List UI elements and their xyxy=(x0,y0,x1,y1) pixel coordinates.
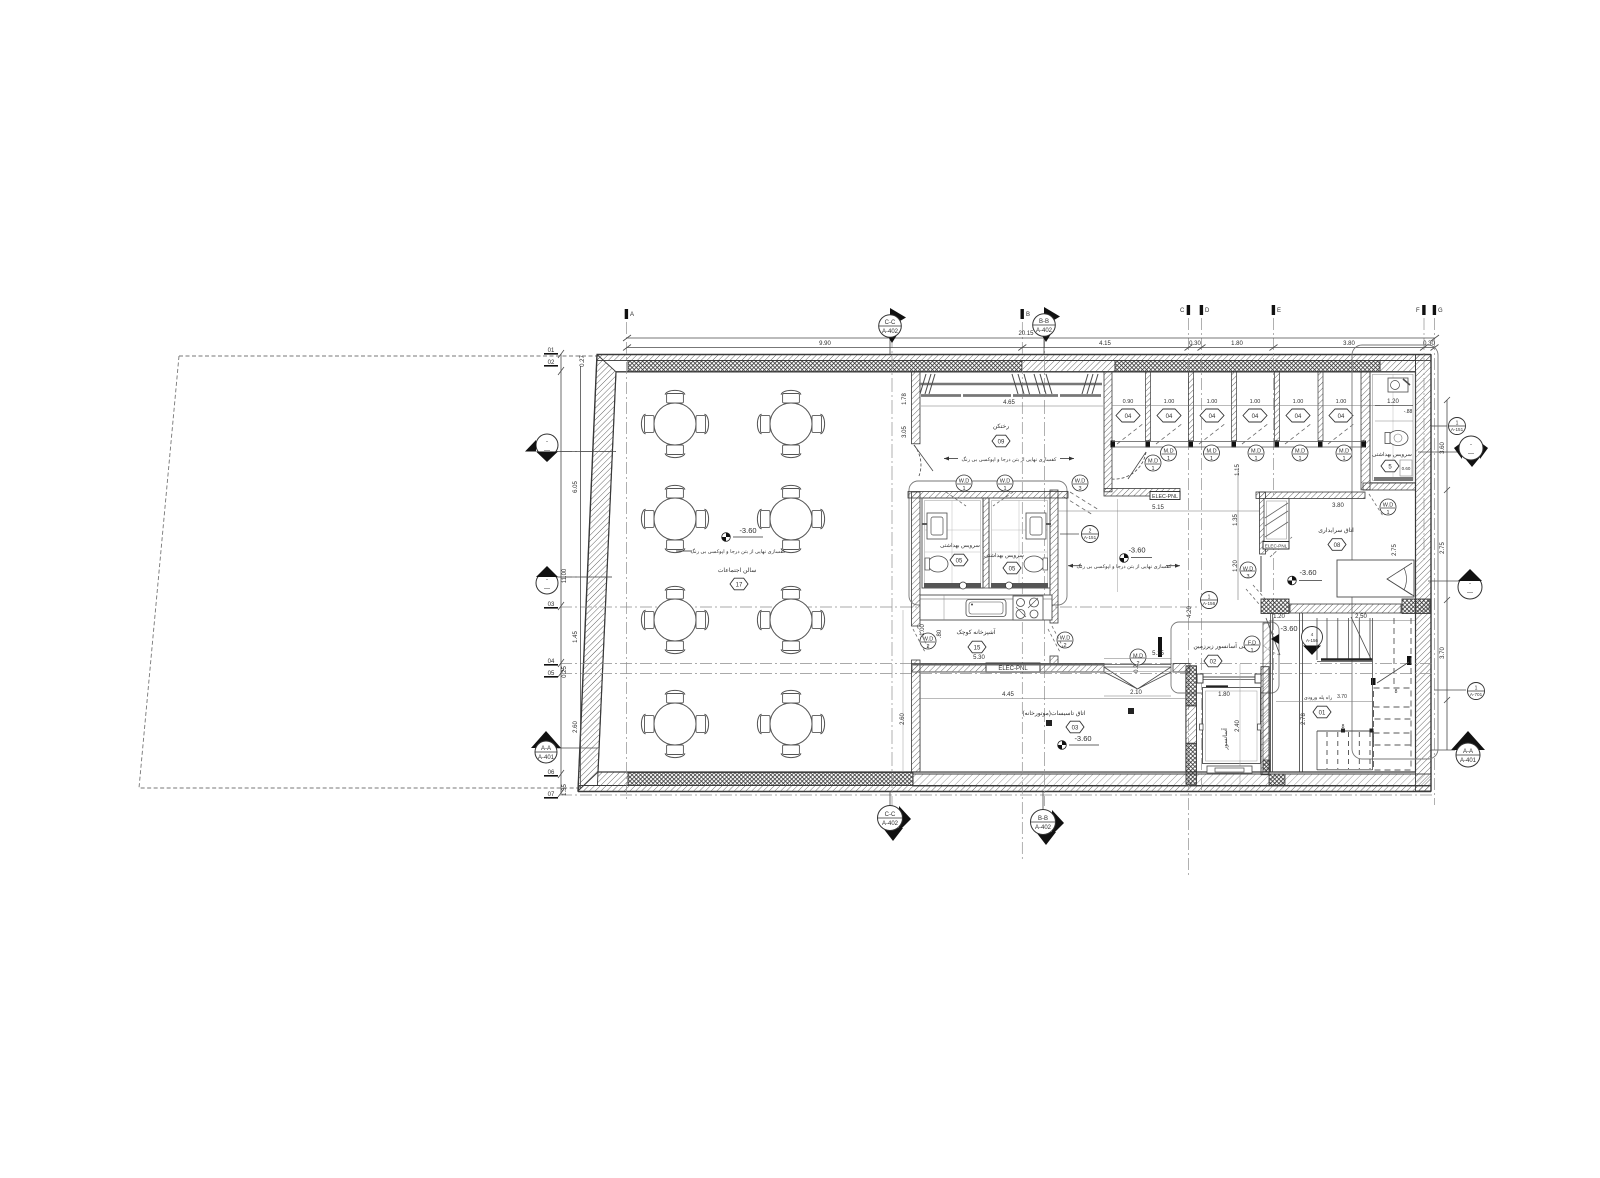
svg-text:A-156: A-156 xyxy=(1203,601,1216,606)
svg-text:F: F xyxy=(1416,308,1420,314)
svg-text:05: 05 xyxy=(1009,567,1016,573)
svg-text:D: D xyxy=(1205,308,1210,314)
svg-text:C-C: C-C xyxy=(885,320,896,326)
svg-text:M.D: M.D xyxy=(1339,449,1349,455)
svg-text:-: - xyxy=(546,439,548,445)
svg-text:-3.60: -3.60 xyxy=(1074,734,1091,743)
svg-text:M.D: M.D xyxy=(1251,449,1261,455)
svg-text:M.D: M.D xyxy=(1163,449,1173,455)
svg-text:17: 17 xyxy=(736,583,743,589)
svg-text:1.20: 1.20 xyxy=(1387,399,1399,405)
svg-text:1: 1 xyxy=(1254,456,1257,462)
svg-text:2: 2 xyxy=(1136,661,1139,667)
svg-text:سرویس بهداشتی: سرویس بهداشتی xyxy=(984,552,1024,559)
svg-text:6.05: 6.05 xyxy=(573,481,579,493)
svg-text:04: 04 xyxy=(1295,414,1302,420)
svg-text:اتاق تاسیسات(موتورخانه): اتاق تاسیسات(موتورخانه) xyxy=(1022,710,1085,717)
svg-text:کفسازی نهایی از بتن درجا و اپو: کفسازی نهایی از بتن درجا و اپوکسی بی رنگ xyxy=(691,548,786,555)
svg-text:W.D: W.D xyxy=(1060,636,1070,642)
svg-text:M.D: M.D xyxy=(1133,654,1143,660)
svg-text:ELEC-PNL: ELEC-PNL xyxy=(998,666,1028,672)
svg-text:A-402: A-402 xyxy=(882,821,899,827)
svg-text:3: 3 xyxy=(1078,486,1081,492)
svg-text:B-B: B-B xyxy=(1038,816,1048,822)
svg-text:رختکن: رختکن xyxy=(993,423,1009,430)
svg-text:3.70: 3.70 xyxy=(1337,694,1347,700)
svg-text:3.70: 3.70 xyxy=(1440,647,1446,659)
svg-text:-3.60: -3.60 xyxy=(1128,546,1145,555)
svg-text:1: 1 xyxy=(1003,486,1006,492)
svg-text:A-402: A-402 xyxy=(1036,328,1053,334)
svg-text:A-A: A-A xyxy=(541,746,551,752)
svg-text:0.60: 0.60 xyxy=(1402,466,1411,471)
svg-text:ELEC-PNL: ELEC-PNL xyxy=(1265,544,1288,549)
svg-text:1: 1 xyxy=(1298,456,1301,462)
svg-text:A-401: A-401 xyxy=(538,755,555,761)
svg-text:1: 1 xyxy=(1210,456,1213,462)
svg-text:0.90: 0.90 xyxy=(1123,399,1134,405)
svg-text:اتاق سرایداری: اتاق سرایداری xyxy=(1318,527,1354,534)
svg-text:5.15: 5.15 xyxy=(1152,505,1164,511)
svg-text:A-401: A-401 xyxy=(1460,758,1477,764)
svg-text:8: 8 xyxy=(1342,724,1345,730)
svg-text:2.50: 2.50 xyxy=(1355,614,1367,620)
svg-text:1.00: 1.00 xyxy=(1207,399,1218,405)
svg-text:03: 03 xyxy=(1072,726,1079,732)
svg-text:W.D: W.D xyxy=(1000,479,1010,485)
svg-text:W.D: W.D xyxy=(959,479,969,485)
svg-text:1: 1 xyxy=(1167,456,1170,462)
svg-text:B: B xyxy=(1026,312,1030,318)
svg-text:W.D: W.D xyxy=(923,637,933,643)
svg-text:آسانسور: آسانسور xyxy=(1221,728,1229,751)
svg-text:9.90: 9.90 xyxy=(819,341,831,347)
svg-text:1: 1 xyxy=(962,486,965,492)
svg-text:04: 04 xyxy=(1166,414,1173,420)
svg-text:2.78: 2.78 xyxy=(1301,713,1307,725)
svg-text:1.00: 1.00 xyxy=(1293,399,1304,405)
svg-text:3.80: 3.80 xyxy=(1343,341,1355,347)
svg-text:15: 15 xyxy=(974,646,981,652)
svg-text:C: C xyxy=(1180,308,1185,314)
svg-text:4.20: 4.20 xyxy=(1187,606,1193,618)
svg-text:1: 1 xyxy=(1342,456,1345,462)
svg-text:4.65: 4.65 xyxy=(1003,400,1015,406)
svg-text:کفسازی نهایی از بتن درجا و اپو: کفسازی نهایی از بتن درجا و اپوکسی بی رنگ xyxy=(1077,563,1172,570)
svg-text:2.60: 2.60 xyxy=(573,721,579,733)
svg-text:راه پله ورودی: راه پله ورودی xyxy=(1304,695,1333,701)
svg-text:سرویس بهداشتی: سرویس بهداشتی xyxy=(1372,451,1412,458)
svg-text:M.D: M.D xyxy=(1295,449,1305,455)
svg-text:1.00: 1.00 xyxy=(1164,399,1175,405)
svg-text:04: 04 xyxy=(1125,414,1132,420)
svg-text:1.80: 1.80 xyxy=(1231,341,1243,347)
svg-text:08: 08 xyxy=(1334,543,1341,549)
svg-text:1: 1 xyxy=(1208,595,1211,601)
svg-text:-: - xyxy=(1469,581,1471,587)
svg-text:2.75: 2.75 xyxy=(1392,544,1398,556)
svg-text:1.45: 1.45 xyxy=(573,631,579,643)
svg-text:-: - xyxy=(1470,442,1472,448)
svg-text:01: 01 xyxy=(1319,711,1326,717)
svg-text:3.05: 3.05 xyxy=(902,426,908,438)
svg-text:M.D: M.D xyxy=(1206,449,1216,455)
svg-text:1: 1 xyxy=(1151,466,1154,472)
svg-text:C-C: C-C xyxy=(885,812,896,818)
svg-text:F.D: F.D xyxy=(1248,641,1256,647)
svg-text:ELEC-PNL: ELEC-PNL xyxy=(1152,494,1178,500)
svg-text:5.30: 5.30 xyxy=(973,655,985,661)
svg-text:8: 8 xyxy=(1395,689,1398,695)
svg-text:0.30: 0.30 xyxy=(1189,341,1201,347)
svg-text:-: - xyxy=(546,577,548,583)
svg-text:G: G xyxy=(1438,308,1443,314)
svg-text:4.15: 4.15 xyxy=(1099,341,1111,347)
svg-text:W.D: W.D xyxy=(1383,503,1393,509)
svg-text:W.D: W.D xyxy=(1243,567,1253,573)
svg-text:05: 05 xyxy=(956,559,963,565)
svg-text:A-151: A-151 xyxy=(1084,535,1097,540)
svg-text:کفسازی نهایی از بتن درجا و اپو: کفسازی نهایی از بتن درجا و اپوکسی بی رنگ xyxy=(962,456,1057,463)
svg-text:1: 1 xyxy=(1475,686,1478,692)
svg-text:3.60: 3.60 xyxy=(1440,442,1446,454)
svg-text:1.00: 1.00 xyxy=(1250,399,1261,405)
svg-text:A-402: A-402 xyxy=(1035,825,1052,831)
svg-text:3: 3 xyxy=(1246,574,1249,580)
svg-text:1.20: 1.20 xyxy=(1273,614,1285,620)
svg-text:.80: .80 xyxy=(937,629,943,638)
svg-text:E: E xyxy=(1277,308,1281,314)
svg-text:-.88: -.88 xyxy=(1404,409,1413,415)
svg-text:—: — xyxy=(1468,451,1474,457)
svg-text:04: 04 xyxy=(1252,414,1259,420)
svg-text:09: 09 xyxy=(998,440,1005,446)
svg-text:آشپزخانه کوچک: آشپزخانه کوچک xyxy=(957,628,996,636)
svg-text:B-B: B-B xyxy=(1039,319,1049,325)
svg-text:2.10: 2.10 xyxy=(1130,690,1142,696)
svg-text:A-151: A-151 xyxy=(1451,427,1464,432)
svg-text:A-701: A-701 xyxy=(1470,692,1483,697)
svg-text:2: 2 xyxy=(1089,529,1092,535)
svg-text:1: 1 xyxy=(1250,648,1253,654)
svg-text:—: — xyxy=(544,586,550,592)
svg-text:0.27: 0.27 xyxy=(580,355,586,367)
svg-text:1.35: 1.35 xyxy=(562,784,568,796)
svg-text:A: A xyxy=(630,312,634,318)
svg-text:4.45: 4.45 xyxy=(1002,692,1014,698)
svg-text:1.78: 1.78 xyxy=(902,393,908,405)
svg-text:سالن اجتماعات: سالن اجتماعات xyxy=(718,567,756,574)
svg-text:04: 04 xyxy=(1338,414,1345,420)
svg-text:A-A: A-A xyxy=(1463,749,1473,755)
svg-text:2: 2 xyxy=(1063,643,1066,649)
svg-text:—: — xyxy=(1467,590,1473,596)
svg-text:02: 02 xyxy=(1210,660,1217,666)
svg-text:سرویس بهداشتی: سرویس بهداشتی xyxy=(940,542,980,549)
svg-text:20.15: 20.15 xyxy=(1018,331,1034,337)
svg-text:-3.60: -3.60 xyxy=(739,526,756,535)
svg-text:1.00: 1.00 xyxy=(1336,399,1347,405)
svg-text:M.D: M.D xyxy=(1148,459,1158,465)
svg-text:A-402: A-402 xyxy=(882,329,899,335)
svg-text:2.75: 2.75 xyxy=(1440,542,1446,554)
svg-text:3.80: 3.80 xyxy=(1332,503,1344,509)
svg-text:لابی آسانسور زیرزمین: لابی آسانسور زیرزمین xyxy=(1193,642,1248,650)
svg-text:11.00: 11.00 xyxy=(562,568,568,583)
svg-text:0.25: 0.25 xyxy=(562,666,568,678)
svg-text:1: 1 xyxy=(1386,510,1389,516)
svg-text:-3.60: -3.60 xyxy=(1299,568,1316,577)
svg-text:0.30: 0.30 xyxy=(1423,341,1435,347)
svg-text:1.00: 1.00 xyxy=(920,624,926,636)
svg-text:1: 1 xyxy=(1456,421,1459,427)
svg-text:04: 04 xyxy=(1209,414,1216,420)
svg-text:W.D: W.D xyxy=(1075,479,1085,485)
svg-text:5.15: 5.15 xyxy=(1152,651,1164,657)
svg-text:-3.60: -3.60 xyxy=(1280,624,1297,633)
svg-text:1.80: 1.80 xyxy=(1218,692,1230,698)
